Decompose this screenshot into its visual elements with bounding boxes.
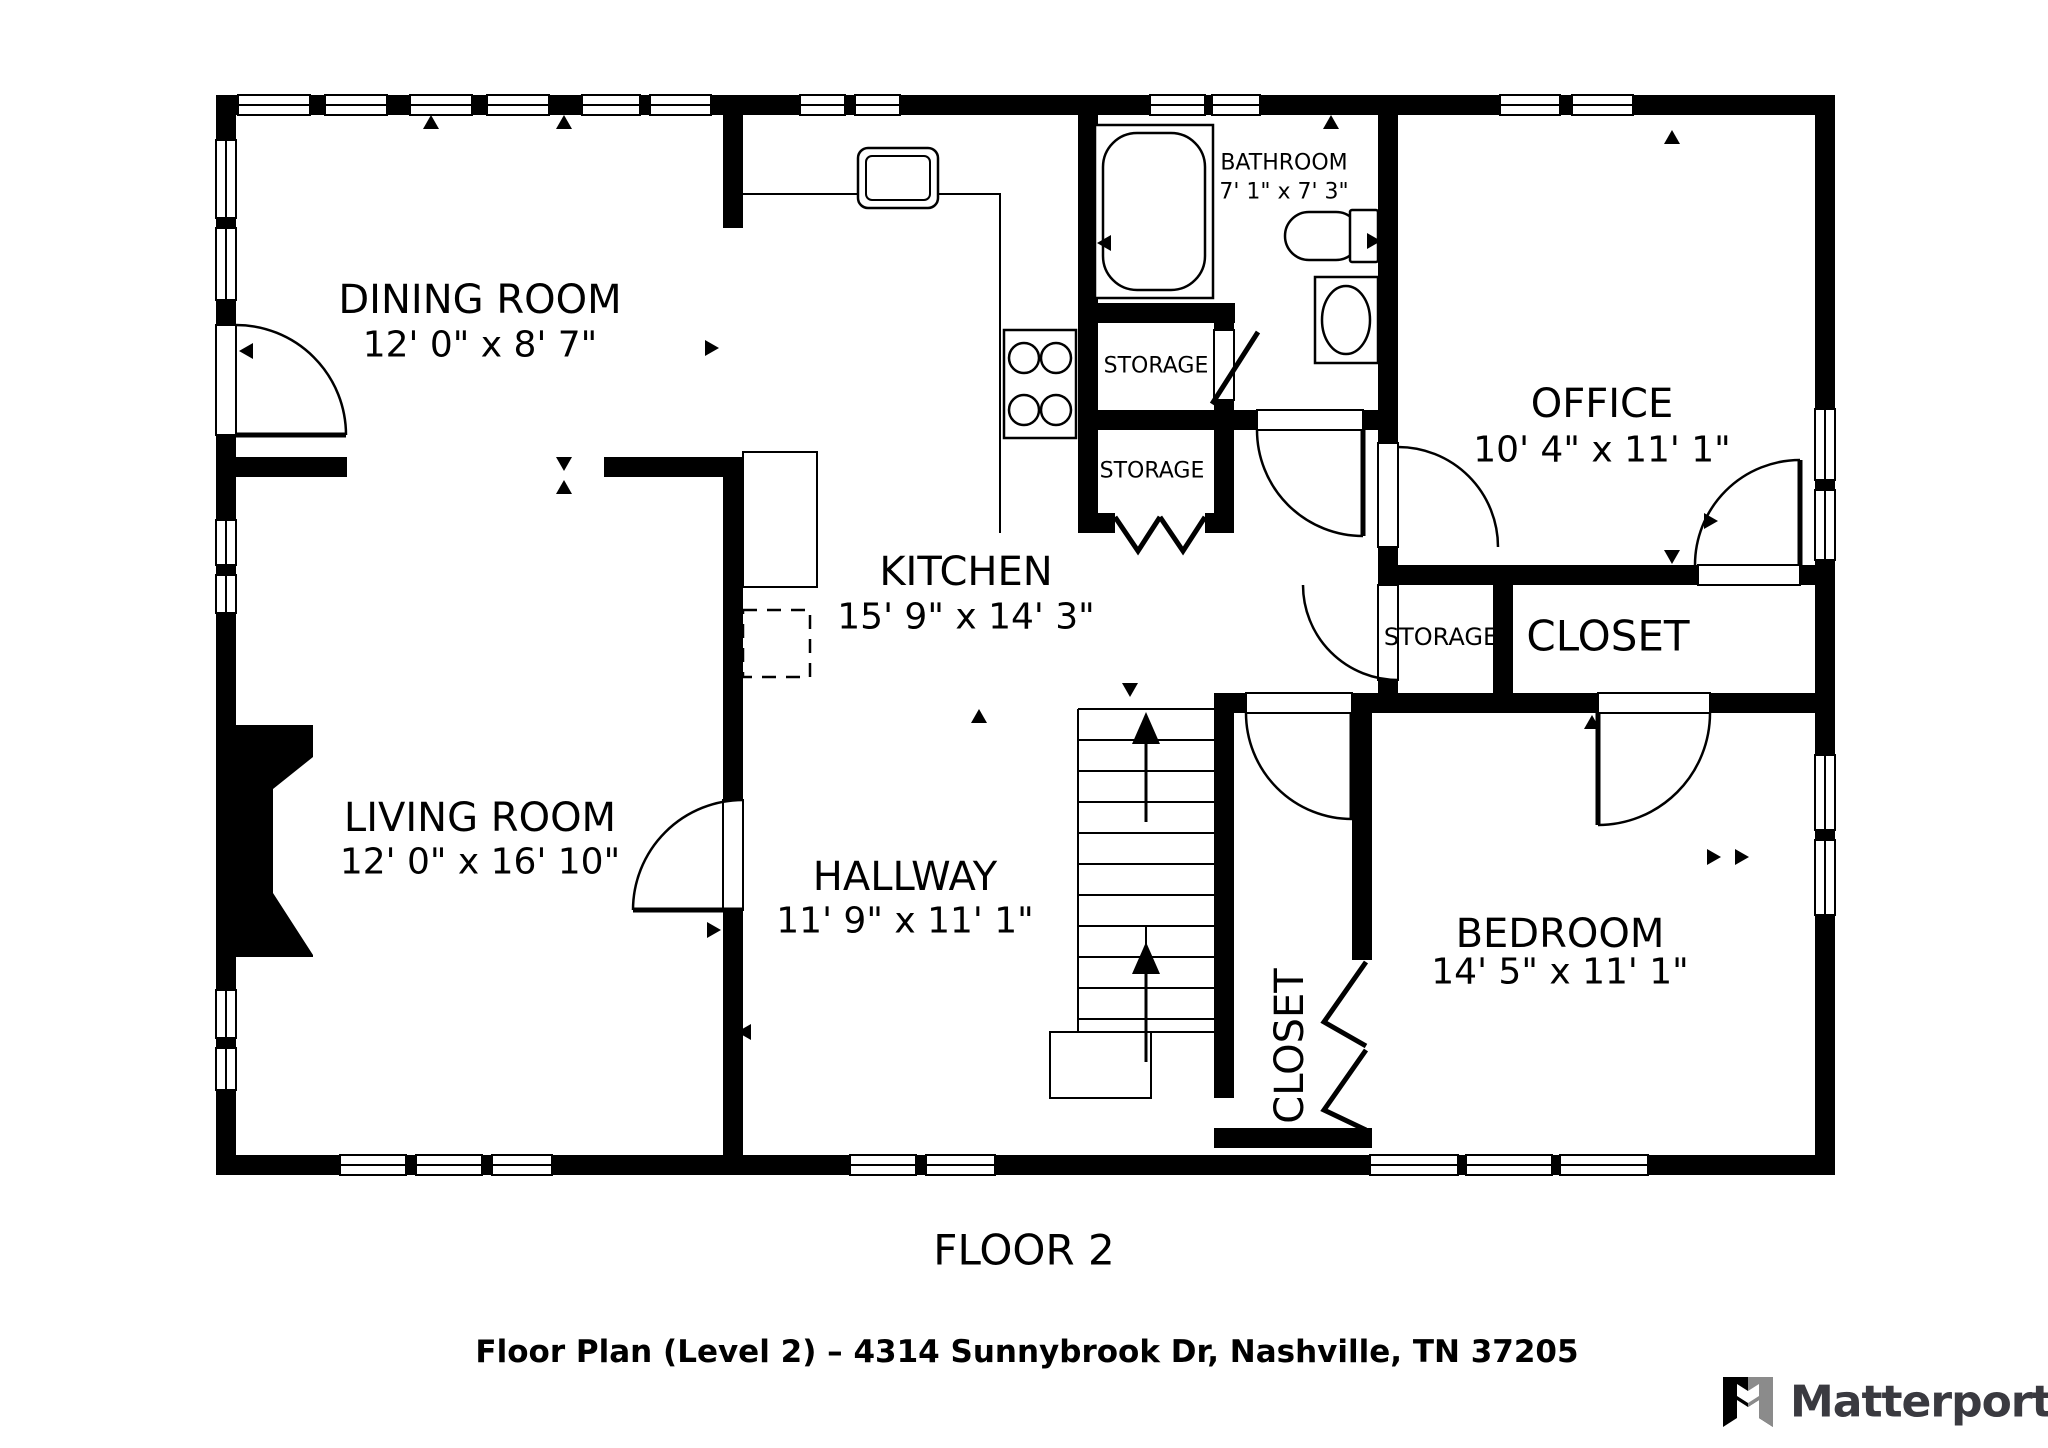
kitchen-cabinet — [743, 452, 817, 587]
stove — [1004, 330, 1076, 438]
dining-kitchen-divider — [723, 115, 743, 228]
marker-up-icon — [423, 115, 439, 129]
room-dims-kitchen: 15' 9" x 14' 3" — [837, 597, 1094, 638]
stairs-up-arrow — [1132, 712, 1160, 822]
floor-label: FLOOR 2 — [933, 1226, 1114, 1275]
bedroom-top-wall — [1352, 693, 1598, 713]
matterport-logo-icon — [1723, 1377, 1773, 1427]
room-label-hallway: HALLWAY — [813, 854, 998, 900]
room-label-office: OFFICE — [1531, 381, 1674, 427]
room-label-bathroom: BATHROOM — [1220, 151, 1347, 176]
bedroom-door — [1598, 693, 1710, 825]
living-room-door — [633, 800, 743, 910]
marker-up-icon — [556, 480, 572, 494]
marker-up-icon — [556, 115, 572, 129]
room-dims-office: 10' 4" x 11' 1" — [1473, 430, 1730, 471]
stairs-up-arrow — [1132, 942, 1160, 1062]
marker-right-icon — [705, 340, 719, 356]
room-label-dining: DINING ROOM — [338, 277, 621, 323]
room-label-bedroom: BEDROOM — [1456, 911, 1665, 957]
label-bedroom-closet: CLOSET — [1267, 968, 1313, 1124]
label-bath-storage-lower: STORAGE — [1100, 459, 1205, 484]
bathtub — [1095, 125, 1213, 298]
stair-landing — [1050, 1032, 1151, 1098]
bedroom-closet-bifold — [1324, 962, 1366, 1130]
marker-left-icon — [239, 343, 253, 359]
bath-storage-door — [1212, 330, 1258, 404]
label-hall-closet: CLOSET — [1526, 612, 1689, 661]
marker-right-icon — [1704, 513, 1718, 529]
matterport-logo: Matterport — [1723, 1377, 2048, 1428]
room-dims-bedroom: 14' 5" x 11' 1" — [1431, 952, 1688, 993]
bathroom-door — [1257, 410, 1363, 536]
staircase — [1050, 709, 1214, 1098]
marker-up-icon — [1664, 130, 1680, 144]
stairs-wall — [1214, 694, 1234, 1098]
marker-down-icon — [556, 457, 572, 471]
bathroom-sink — [1315, 277, 1378, 363]
room-dims-bathroom: 7' 1" x 7' 3" — [1219, 180, 1348, 205]
plan-caption: Floor Plan (Level 2) – 4314 Sunnybrook D… — [475, 1334, 1578, 1370]
marker-up-icon — [1323, 115, 1339, 129]
floor-plan-canvas: DINING ROOM 12' 0" x 8' 7" KITCHEN 15' 9… — [0, 0, 2048, 1448]
label-bath-storage-upper: STORAGE — [1104, 354, 1209, 379]
bedroom-passage-door — [1246, 693, 1352, 819]
marker-up-icon — [971, 709, 987, 723]
marker-right-icon — [707, 922, 721, 938]
room-dims-dining: 12' 0" x 8' 7" — [363, 325, 598, 366]
room-dims-living: 12' 0" x 16' 10" — [340, 842, 620, 883]
dishwasher-dashed — [743, 610, 810, 677]
marker-down-icon — [1664, 550, 1680, 564]
kitchen-sink — [858, 148, 938, 208]
fixtures — [743, 125, 1378, 677]
marker-right-icon — [1707, 849, 1721, 865]
marker-down-icon — [1122, 683, 1138, 697]
window — [340, 1155, 1648, 1175]
dining-door — [216, 325, 346, 435]
room-label-kitchen: KITCHEN — [879, 549, 1052, 595]
bath-storage-bifold — [1115, 517, 1205, 551]
label-hall-storage: STORAGE — [1384, 623, 1498, 651]
kitchen-counter-edge — [743, 194, 1000, 533]
room-dims-hallway: 11' 9" x 11' 1" — [776, 901, 1033, 942]
room-labels: DINING ROOM 12' 0" x 8' 7" KITCHEN 15' 9… — [338, 151, 1730, 1124]
floor-plan-page: DINING ROOM 12' 0" x 8' 7" KITCHEN 15' 9… — [0, 0, 2048, 1448]
office-bottom-wall — [1398, 565, 1698, 585]
bath-office-divider — [1378, 115, 1398, 443]
room-label-living: LIVING ROOM — [344, 795, 616, 841]
matterport-wordmark: Matterport — [1790, 1377, 2048, 1428]
marker-left-icon — [1735, 849, 1749, 865]
toilet — [1285, 210, 1378, 262]
